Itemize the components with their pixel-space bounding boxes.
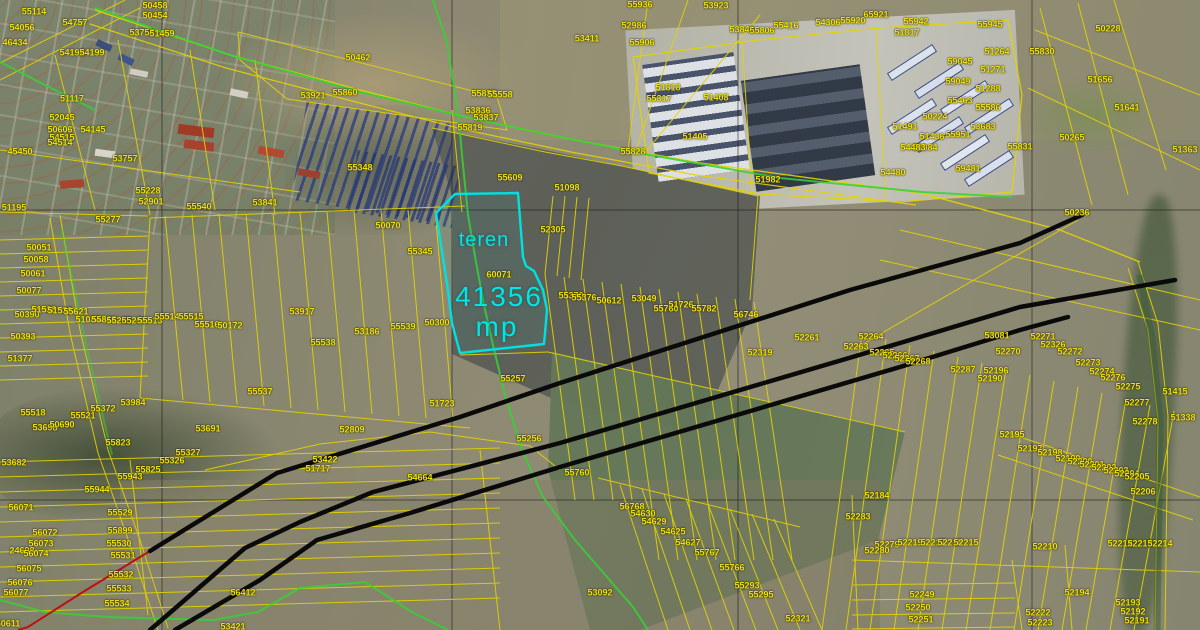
parcel-label: 52321 <box>785 615 810 624</box>
highlight-parcel-name: teren <box>459 230 510 250</box>
parcel-label: 55767 <box>694 549 719 558</box>
parcel-label: 54480 <box>880 169 905 178</box>
parcel-label: 50612 <box>596 297 621 306</box>
parcel-label: 51338 <box>1170 414 1195 423</box>
parcel-label: 55920 <box>840 17 865 26</box>
parcel-label: 52319 <box>747 349 772 358</box>
parcel-label: 55782 <box>691 305 716 314</box>
parcel-label: 50690 <box>49 421 74 430</box>
parcel-label: 51408 <box>703 94 728 103</box>
parcel-label: 55944 <box>84 486 109 495</box>
parcel-label: 55951 <box>945 131 970 140</box>
parcel-label: 52901 <box>138 198 163 207</box>
parcel-label: 52809 <box>339 426 364 435</box>
parcel-label: 54664 <box>407 474 432 483</box>
parcel-label: 55326 <box>159 457 184 466</box>
parcel-label: 51195 <box>2 204 27 213</box>
parcel-label: 53682 <box>1 459 26 468</box>
parcel-label: 65921 <box>863 11 888 20</box>
parcel-label: 53049 <box>631 295 656 304</box>
parcel-label: 59049 <box>945 78 970 87</box>
parcel-label: 55539 <box>390 323 415 332</box>
parcel-label: 50300 <box>424 319 449 328</box>
parcel-label: 52287 <box>950 366 975 375</box>
parcel-label: 50172 <box>217 322 242 331</box>
parcel-label: 55899 <box>107 527 132 536</box>
parcel-label: 52215 <box>953 539 978 548</box>
parcel-label: 53081 <box>984 332 1009 341</box>
parcel-label: 59045 <box>947 58 972 67</box>
parcel-label: 53984 <box>120 399 145 408</box>
parcel-label: 55830 <box>1029 48 1054 57</box>
parcel-label: 56746 <box>733 311 758 320</box>
parcel-label: 52205 <box>1124 473 1149 482</box>
parcel-label: 55534 <box>104 600 129 609</box>
parcel-label: 52272 <box>1057 348 1082 357</box>
parcel-label: 50061 <box>20 270 45 279</box>
parcel-label: 56077 <box>3 589 28 598</box>
parcel-label: 50051 <box>26 244 51 253</box>
parcel-label: 53683 <box>970 123 995 132</box>
parcel-label: 54514 <box>47 139 72 148</box>
parcel-label: 53092 <box>587 589 612 598</box>
parcel-label: 54199 <box>79 49 104 58</box>
parcel-label: 50236 <box>1064 209 1089 218</box>
parcel-label: 59481 <box>955 165 980 174</box>
parcel-label: 54757 <box>62 19 87 28</box>
parcel-label: 56412 <box>230 589 255 598</box>
cadastral-map-viewport[interactable]: 5511454056464345475750458504545375851459… <box>0 0 1200 630</box>
parcel-label: 51377 <box>7 355 32 364</box>
parcel-label: 51818 <box>655 84 680 93</box>
parcel-label: 55530 <box>106 540 131 549</box>
parcel-label: 51726 <box>668 301 693 310</box>
parcel-label: 55760 <box>564 469 589 478</box>
parcel-label: 55416 <box>773 22 798 31</box>
parcel-label: 55823 <box>105 439 130 448</box>
parcel-label: 50393 <box>10 333 35 342</box>
parcel-label: 52261 <box>794 334 819 343</box>
highlight-parcel-area: 41356 <box>455 283 543 311</box>
parcel-label: 50265 <box>1059 134 1084 143</box>
parcel-label: 55529 <box>107 509 132 518</box>
parcel-label: 52184 <box>864 492 889 501</box>
parcel-label: 55257 <box>500 375 525 384</box>
tree-road-shadow <box>1140 275 1160 630</box>
parcel-label: 55317 <box>646 95 671 104</box>
parcel-label: 52222 <box>1025 609 1050 618</box>
parcel-label: 54056 <box>9 24 34 33</box>
parcel-label: 52264 <box>858 333 883 342</box>
parcel-label: 53691 <box>195 425 220 434</box>
parcel-label: 55540 <box>186 203 211 212</box>
parcel-label: 55345 <box>407 248 432 257</box>
parcel-label: 52277 <box>1124 399 1149 408</box>
parcel-label: 53841 <box>252 199 277 208</box>
parcel-label: 51405 <box>682 133 707 142</box>
parcel-label: 53421 <box>220 623 245 630</box>
parcel-label: 55806 <box>749 27 774 36</box>
parcel-label: 50454 <box>142 12 167 21</box>
parcel-label: 55532 <box>108 571 133 580</box>
parcel-label: 55463 <box>947 97 972 106</box>
highlight-parcel-unit: mp <box>476 313 519 341</box>
powerline-2 <box>150 280 1175 630</box>
parcel-label: 55277 <box>95 216 120 225</box>
parcel-label: 55945 <box>977 21 1002 30</box>
parcel-label: 60071 <box>486 271 511 280</box>
parcel-label: 52210 <box>1032 543 1057 552</box>
parcel-label: 55819 <box>457 124 482 133</box>
parcel-label: 55831 <box>1007 143 1032 152</box>
parcel-label: 51491 <box>892 123 917 132</box>
parcel-label: 50462 <box>345 54 370 63</box>
green-road-main <box>95 8 1012 197</box>
parcel-label: 51817 <box>894 29 919 38</box>
parcel-label: 52263 <box>843 343 868 352</box>
parcel-label: 55533 <box>106 585 131 594</box>
parcel-label: 55372 <box>90 405 115 414</box>
parcel-label: 55586 <box>975 104 1000 113</box>
parcel-label: 52249 <box>909 591 934 600</box>
parcel-label: 50611 <box>0 620 20 629</box>
parcel-label: 53186 <box>354 328 379 337</box>
parcel-label: 55936 <box>627 1 652 10</box>
parcel-label: 52194 <box>1064 589 1089 598</box>
parcel-label: 51098 <box>554 184 579 193</box>
parcel-label: 53757 <box>112 155 137 164</box>
parcel-label: 52219 <box>897 539 922 548</box>
parcel-label: 53837 <box>473 114 498 123</box>
parcel-label: 46434 <box>2 39 27 48</box>
parcel-label: 51717 <box>305 465 330 474</box>
parcel-label: 51264 <box>984 48 1009 57</box>
parcel-label: 53921 <box>300 92 325 101</box>
parcel-label: 51656 <box>1087 76 1112 85</box>
parcel-label: 56076 <box>7 579 32 588</box>
parcel-label: 50224 <box>922 113 947 122</box>
parcel-label: 52206 <box>1130 488 1155 497</box>
parcel-label: 54625 <box>660 528 685 537</box>
parcel-label: 55609 <box>497 174 522 183</box>
parcel-label: 56071 <box>8 504 33 513</box>
parcel-label: 55537 <box>247 388 272 397</box>
parcel-label: 51459 <box>149 30 174 39</box>
parcel-label: 55906 <box>629 39 654 48</box>
parcel-label: 55295 <box>748 591 773 600</box>
parcel-label: 55114 <box>22 8 47 17</box>
parcel-label: 54629 <box>641 518 666 527</box>
parcel-label: 53923 <box>703 2 728 11</box>
parcel-label: 55943 <box>117 473 142 482</box>
parcel-label: 56075 <box>16 565 41 574</box>
parcel-label: 55516 <box>194 321 219 330</box>
parcel-label: 51641 <box>1114 104 1139 113</box>
parcel-label: 52270 <box>995 348 1020 357</box>
parcel-label: 51117 <box>60 95 84 104</box>
parcel-label: 50070 <box>375 222 400 231</box>
parcel-label: 52278 <box>1132 418 1157 427</box>
parcel-label: 53917 <box>289 308 314 317</box>
parcel-label: 51363 <box>1172 146 1197 155</box>
parcel-label: 52283 <box>845 513 870 522</box>
parcel-label: 52190 <box>977 375 1002 384</box>
parcel-label: 51982 <box>755 176 780 185</box>
parcel-label: 55538 <box>310 339 335 348</box>
parcel-label: 45450 <box>7 148 32 157</box>
parcel-label: 56072 <box>32 529 57 538</box>
parcel-label: 52191 <box>1124 617 1149 626</box>
parcel-label: 52986 <box>621 22 646 31</box>
powerline-layer <box>150 215 1175 630</box>
parcel-label: 51271 <box>980 66 1005 75</box>
parcel-label: 55376 <box>571 294 596 303</box>
parcel-label: 52214 <box>1147 540 1172 549</box>
parcel-label: 54627 <box>675 539 700 548</box>
parcel-label: 51436 <box>919 133 944 142</box>
parcel-label: 55860 <box>332 89 357 98</box>
parcel-label: 52280 <box>864 547 889 556</box>
parcel-label: 55514 <box>154 313 179 322</box>
parcel-label: 52305 <box>540 226 565 235</box>
parcel-label: 52275 <box>1115 383 1140 392</box>
parcel-label: 55518 <box>20 409 45 418</box>
parcel-label: 50077 <box>16 287 41 296</box>
parcel-label: 55828 <box>620 148 645 157</box>
parcel-label: 54483 <box>900 144 925 153</box>
parcel-label: 55348 <box>347 164 372 173</box>
parcel-label: 52223 <box>1027 619 1052 628</box>
parcel-label: 53411 <box>575 35 600 44</box>
parcel-label: 55942 <box>903 18 928 27</box>
parcel-label: 51415 <box>1162 388 1187 397</box>
parcel-label: 55558 <box>487 91 512 100</box>
parcel-label: 55766 <box>719 564 744 573</box>
parcel-label: 50228 <box>1095 25 1120 34</box>
parcel-label: 54145 <box>80 126 105 135</box>
parcel-label: 55228 <box>135 187 160 196</box>
parcel-label: 52251 <box>908 616 933 625</box>
parcel-label: 55531 <box>110 552 135 561</box>
parcel-label: 56074 <box>23 550 48 559</box>
parcel-label: 51288 <box>975 85 1000 94</box>
parcel-label: 55256 <box>516 435 541 444</box>
parcel-label: 54306 <box>815 19 840 28</box>
parcel-label: 50458 <box>142 2 167 11</box>
parcel-label: 52045 <box>49 114 74 123</box>
parcel-label: 51723 <box>429 400 454 409</box>
parcel-label: 52268 <box>905 358 930 367</box>
parcel-label: 52250 <box>905 604 930 613</box>
parcel-label: 52195 <box>999 431 1024 440</box>
parcel-label: 50058 <box>23 256 48 265</box>
